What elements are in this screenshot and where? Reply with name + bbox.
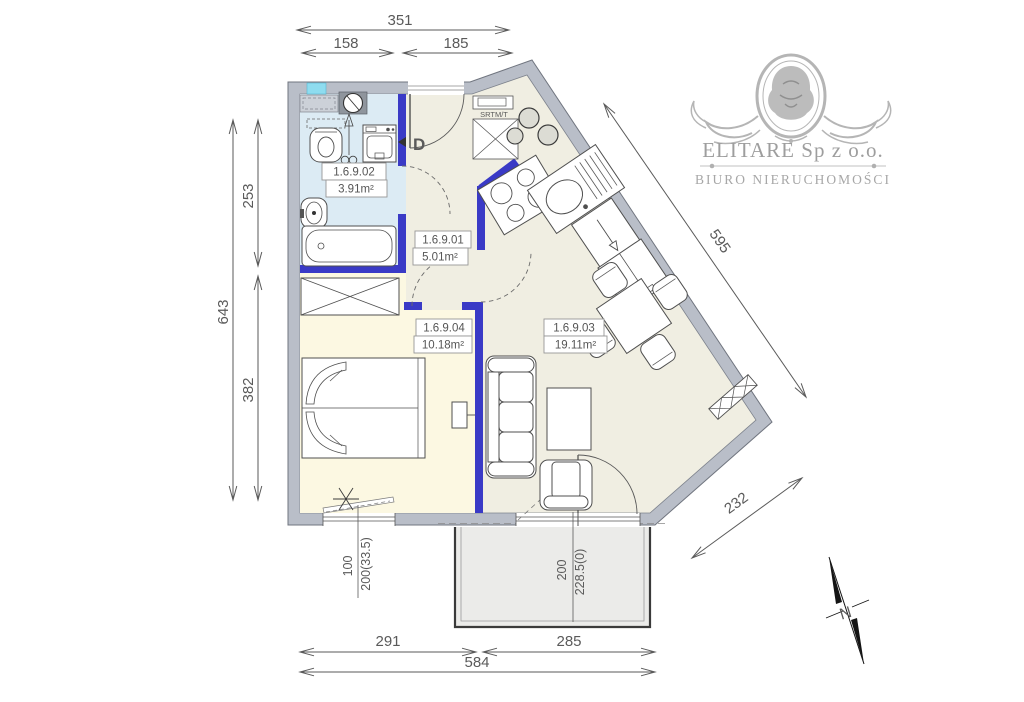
dim-diag-lower-label: 232 <box>721 489 751 517</box>
balcony-door-width-label: 200 <box>555 560 569 581</box>
bathroom-vent-window <box>307 83 326 94</box>
bedroom-wall-right <box>475 310 483 513</box>
room-number: 1.6.9.01 <box>422 235 464 247</box>
dim-top-right-label: 185 <box>443 35 468 52</box>
dim-diag-lower-line <box>692 478 802 558</box>
bedroom-wall-top-right <box>462 302 483 310</box>
sofa <box>486 356 536 478</box>
balcony-door-params-label: 228.5(0) <box>573 549 587 596</box>
company-logo: ELITARE Sp z o.o. BIURO NIERUCHOMOŚCI <box>691 55 891 187</box>
dim-left-lower-label: 382 <box>240 377 257 402</box>
north-arrow: N <box>826 557 869 664</box>
dim-top-left-label: 158 <box>333 35 358 52</box>
dim-left-total-label: 643 <box>215 299 232 324</box>
floor-plan-page: SRTM/T <box>0 0 1024 702</box>
room-area: 3.91m² <box>338 184 374 196</box>
logo-company-name: ELITARE Sp z o.o. <box>702 138 884 162</box>
dim-bottom-left-label: 291 <box>375 633 400 650</box>
bathtub <box>302 226 396 266</box>
dim-bottom-total-label: 584 <box>464 654 489 671</box>
room-area: 5.01m² <box>422 252 458 264</box>
wardrobe <box>301 278 399 315</box>
room-number: 1.6.9.03 <box>553 323 595 335</box>
dim-left-upper-label: 253 <box>240 183 257 208</box>
north-label: N <box>838 604 854 624</box>
bathroom-shelf <box>300 95 338 112</box>
toilet <box>310 128 342 162</box>
logo-divider <box>700 164 886 169</box>
room-number: 1.6.9.04 <box>423 323 465 335</box>
coffee-table <box>547 388 591 450</box>
room-label-bathroom: 1.6.9.02 3.91m² <box>322 163 387 197</box>
room-area: 10.18m² <box>422 340 464 352</box>
room-label-bedroom: 1.6.9.04 10.18m² <box>414 319 472 353</box>
dim-top-total-label: 351 <box>387 12 412 29</box>
kitchen-shaft: SRTM/T <box>473 96 518 159</box>
bedroom-window-params-label: 200(33.5) <box>359 537 373 591</box>
logo-tagline: BIURO NIERUCHOMOŚCI <box>695 172 891 187</box>
room-label-living: 1.6.9.03 19.11m² <box>544 319 607 353</box>
bathroom-wall-lower <box>398 214 406 272</box>
washbasin <box>300 198 327 228</box>
entrance-door-label: D <box>413 135 425 154</box>
washing-machine <box>363 125 396 162</box>
entrance-opening <box>408 81 464 95</box>
bedroom-wall-top-left <box>404 302 422 310</box>
room-number: 1.6.9.02 <box>333 167 375 179</box>
dim-diag-upper-label: 595 <box>706 226 734 256</box>
room-area: 19.11m² <box>555 340 597 352</box>
double-bed <box>302 358 425 458</box>
armchair <box>540 460 592 510</box>
bathroom-wall-upper <box>398 94 406 166</box>
lion-ornament <box>691 55 890 144</box>
shaft-label: SRTM/T <box>480 110 508 119</box>
water-heater <box>339 92 367 114</box>
floor-plan-canvas: SRTM/T <box>0 0 1024 702</box>
dim-bottom-right-label: 285 <box>556 633 581 650</box>
balcony <box>438 524 666 628</box>
bedroom-window-width-label: 100 <box>341 556 355 577</box>
room-label-hall: 1.6.9.01 5.01m² <box>413 231 471 265</box>
